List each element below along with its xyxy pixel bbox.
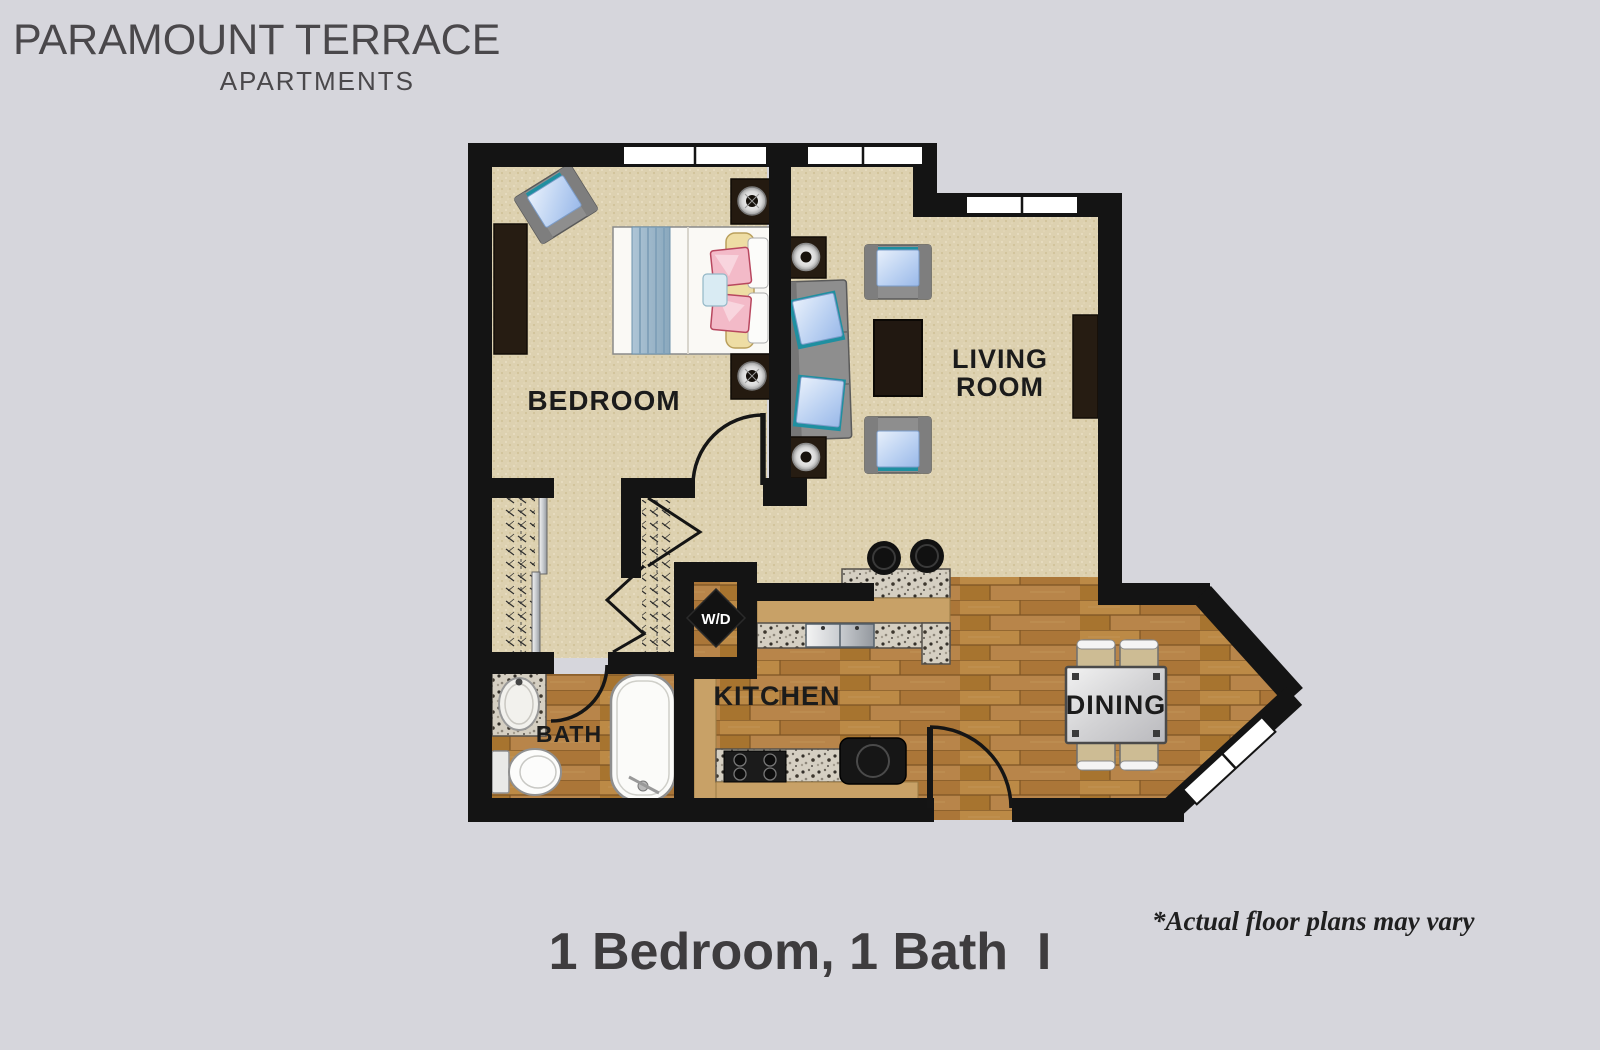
sofa-pillow (793, 375, 846, 432)
living-room-window (807, 146, 923, 165)
floor-plan-page: PARAMOUNT TERRACE APARTMENTS (0, 0, 1600, 1050)
living-room-side-window (966, 196, 1078, 214)
wall-partition-head (765, 143, 809, 167)
stove (724, 751, 786, 782)
bedroom-window (623, 146, 767, 165)
sliding-door-panel (539, 490, 547, 574)
side-table (786, 437, 826, 478)
side-table (786, 237, 826, 278)
kitchen-label: KITCHEN (714, 681, 841, 711)
dining-label: DINING (1066, 690, 1167, 720)
nightstand (731, 354, 773, 399)
refrigerator (840, 738, 906, 784)
plan-title: 1 Bedroom, 1 Bath I (549, 922, 1052, 982)
plan-disclaimer: *Actual floor plans may vary (1152, 906, 1475, 937)
living-room-label-line1: LIVING (952, 344, 1048, 374)
wall-bath-top (608, 652, 676, 674)
coffee-table (874, 320, 922, 396)
wall-wd-bottom (674, 657, 757, 679)
bed (613, 227, 771, 354)
sofa (782, 280, 851, 440)
wall-wd-top (674, 562, 757, 582)
cabinet-run-upper (757, 598, 950, 623)
tv-stand (1073, 315, 1098, 418)
armchair (865, 417, 931, 473)
floor-plan-diagram: W/D BEDROOM LIVING ROOM KITCHEN DINING B… (0, 0, 1600, 1050)
bedroom-label: BEDROOM (527, 385, 680, 416)
wall-bottom (468, 798, 934, 822)
bath-label: BATH (536, 721, 602, 747)
wall-partition (769, 143, 791, 489)
wall-closet (621, 478, 641, 578)
toilet (492, 749, 561, 795)
closet-hangers-left (505, 496, 535, 652)
wall-dining-bottom (1012, 798, 1184, 822)
washer-dryer-label: W/D (701, 611, 730, 628)
wall-wd-left (674, 562, 694, 822)
wall-kitchen-top (737, 583, 874, 601)
sliding-door-panel (532, 572, 540, 656)
wall-bath-top (468, 652, 554, 674)
wall-right (1098, 193, 1122, 605)
armchair (865, 245, 931, 299)
wall-dining-top (1098, 583, 1210, 605)
cabinet-run-left (694, 658, 716, 800)
dresser (494, 224, 527, 354)
nightstand (731, 179, 773, 224)
sofa-pillow (788, 291, 845, 350)
counter-return (922, 623, 950, 664)
wall-bedroom-bottom (468, 478, 554, 498)
kitchen-sink (806, 624, 874, 647)
living-room-label-line2: ROOM (956, 372, 1044, 402)
bathtub (611, 675, 675, 801)
accent-pillow (703, 274, 727, 306)
